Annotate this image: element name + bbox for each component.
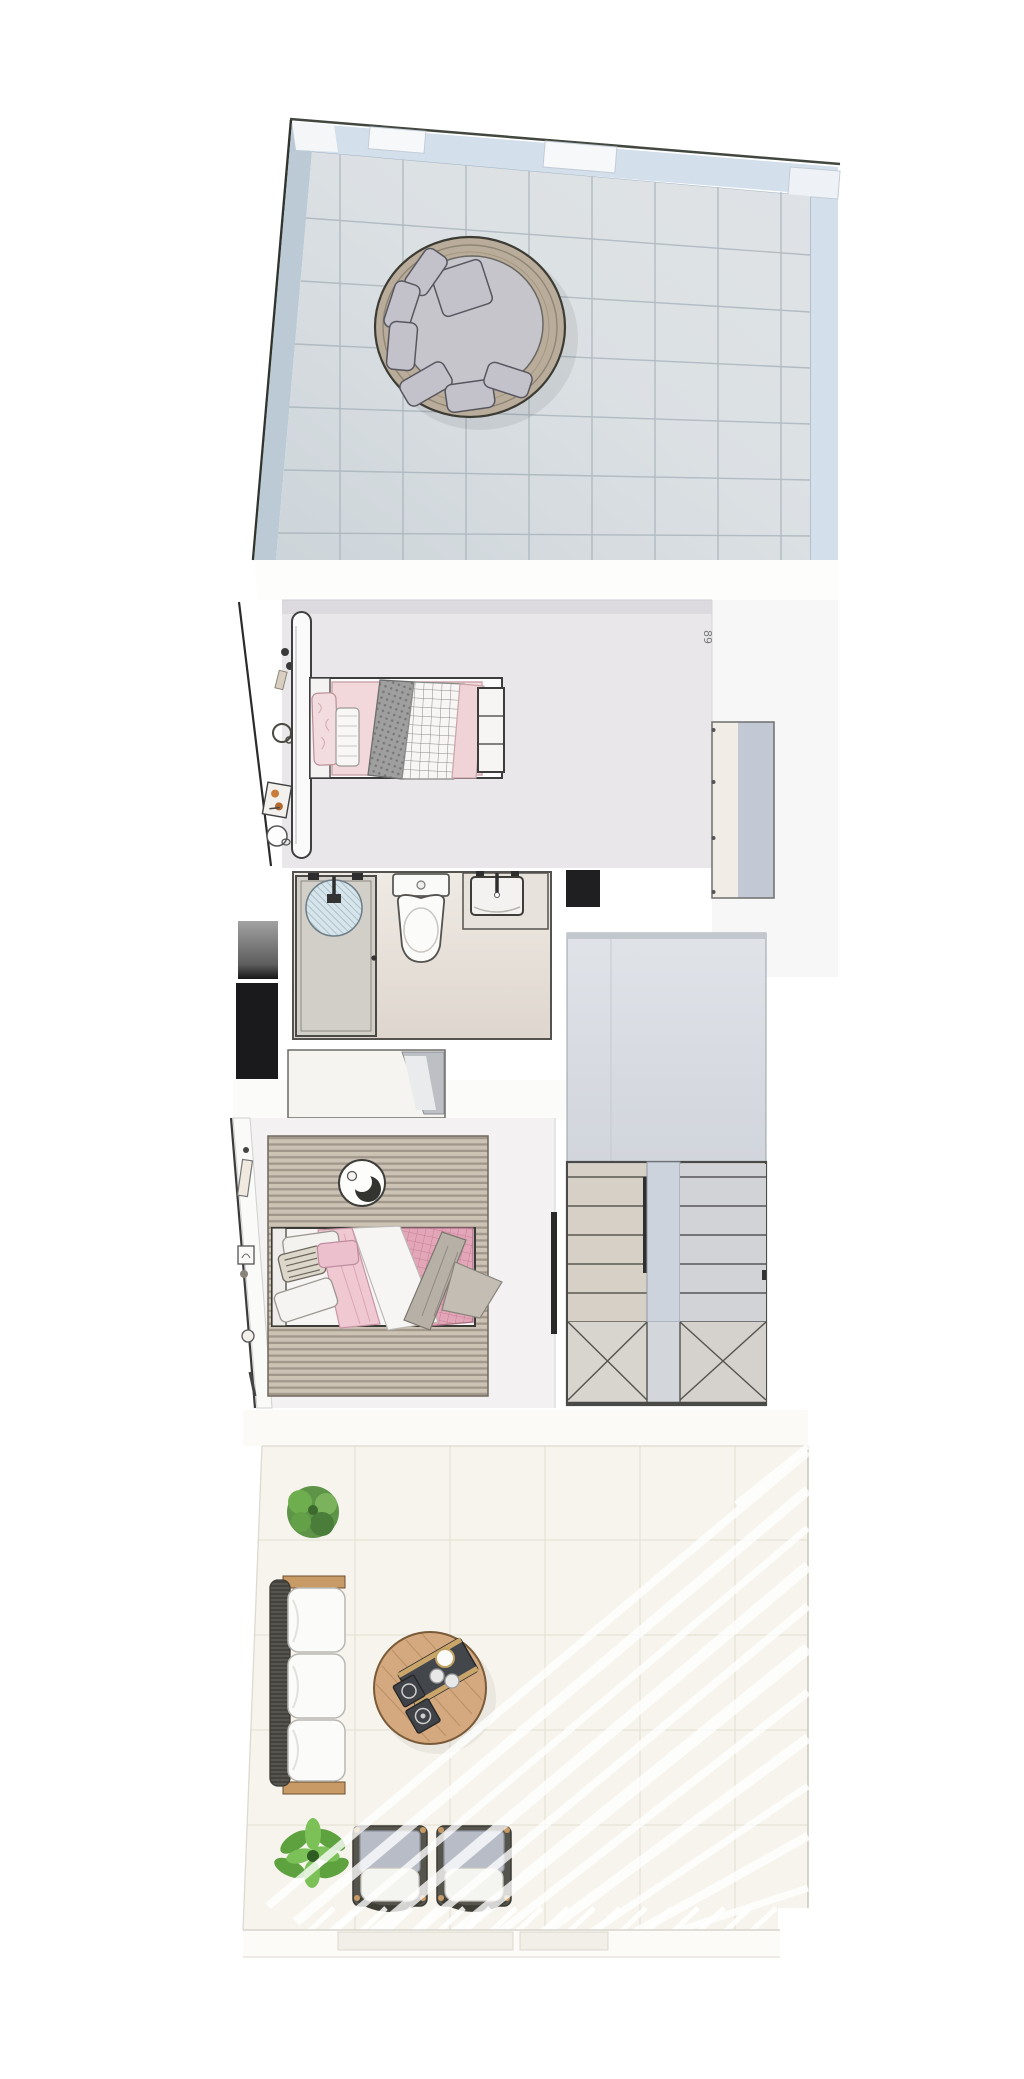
wicker-sofa bbox=[270, 1576, 345, 1794]
railing-pier bbox=[788, 167, 840, 199]
cup bbox=[445, 1674, 459, 1688]
stair-left-flight bbox=[568, 1164, 647, 1322]
stair-right-flight bbox=[680, 1164, 766, 1322]
cup bbox=[436, 1649, 454, 1667]
double-bed-2 bbox=[272, 1226, 502, 1330]
stair-winders bbox=[568, 1322, 766, 1402]
walk-in-shower bbox=[296, 873, 377, 1036]
gray-utility-box bbox=[238, 921, 278, 979]
sofa-wood-bottom bbox=[283, 1782, 345, 1794]
sink-vanity bbox=[463, 871, 548, 929]
double-bed-1 bbox=[310, 678, 504, 779]
wardrobe bbox=[288, 1050, 445, 1118]
bed2-pink-pillow bbox=[317, 1240, 359, 1268]
sofa-wicker-back bbox=[270, 1580, 290, 1786]
sofa-cushions bbox=[288, 1588, 345, 1781]
bedroom1-door-recess bbox=[712, 722, 775, 898]
flush-button bbox=[417, 881, 425, 889]
landing-floor bbox=[567, 933, 766, 1162]
shower-head bbox=[327, 894, 341, 903]
railing-pier bbox=[368, 127, 426, 154]
stair-center-strip bbox=[647, 1162, 680, 1322]
window-recess bbox=[520, 1932, 608, 1950]
railing-pier bbox=[292, 122, 338, 152]
round-crescent-ornament bbox=[339, 1160, 385, 1206]
stair-side-handrail bbox=[551, 1212, 557, 1334]
floor-plan-render: 89 bbox=[0, 0, 1024, 2079]
u-shaped-staircase bbox=[567, 1162, 766, 1405]
roof-terrace bbox=[253, 119, 840, 560]
bed1-white-pillow bbox=[336, 708, 359, 766]
window-recess bbox=[338, 1932, 513, 1950]
cup bbox=[430, 1669, 444, 1683]
living-terrace bbox=[243, 1446, 810, 1960]
potted-plant-1 bbox=[287, 1486, 339, 1538]
black-utility-box bbox=[236, 983, 278, 1079]
bedroom-1: 89 bbox=[239, 600, 774, 898]
bed1-pink-pillow bbox=[312, 693, 338, 766]
tray-with-items bbox=[262, 782, 291, 818]
black-cabinet bbox=[566, 870, 600, 907]
railing-right bbox=[810, 170, 838, 560]
railing-pier bbox=[543, 141, 617, 173]
sofa-wood-top bbox=[283, 1576, 345, 1588]
bathroom bbox=[236, 870, 600, 1079]
bedroom1-outer-wall-edge bbox=[239, 602, 271, 866]
shower-door-handle bbox=[371, 955, 376, 960]
tall-oval-panel bbox=[292, 612, 311, 858]
bed1-foot-bench bbox=[478, 688, 504, 772]
unit-label: 89 bbox=[701, 630, 714, 644]
hallway-landing bbox=[567, 933, 766, 1405]
floor-plan-canvas: 89 bbox=[0, 0, 1024, 2079]
